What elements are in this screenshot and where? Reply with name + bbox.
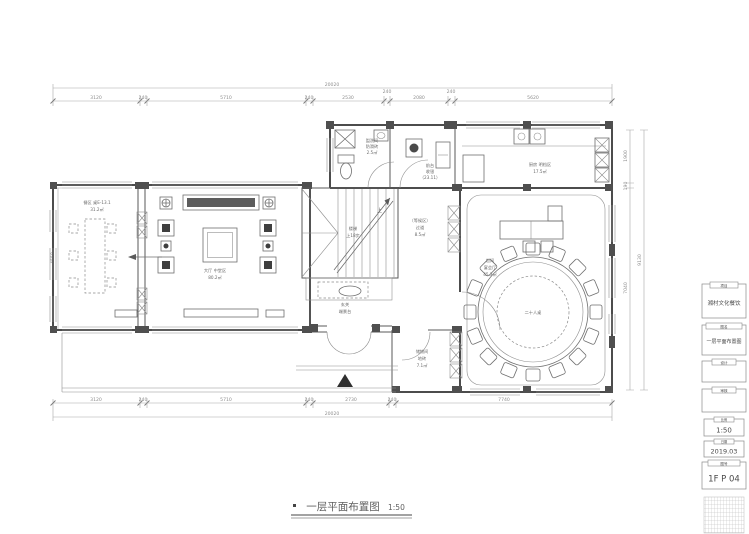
corridor: （等候区） 过道 8.5㎡ xyxy=(410,217,431,237)
storage-label-1: 储物间 xyxy=(416,348,429,355)
tb7-text: 1F P 04 xyxy=(708,475,740,485)
corridor-label-3: 8.5㎡ xyxy=(415,231,427,237)
toilet-room: 盥洗间 防滑砖 2.5㎡ xyxy=(335,130,388,179)
storage-label-2: 地砖 xyxy=(418,355,426,362)
banquet-label-1: 包间 xyxy=(486,257,494,264)
dining-label-1: 餐区 桌E-13.1 xyxy=(83,199,111,206)
kitchen-label-2: 17.5㎡ xyxy=(533,168,547,174)
tb5-text: 1:50 xyxy=(716,427,732,435)
dim-top-1: 240 xyxy=(139,95,148,101)
dim-right-total: 9130 xyxy=(637,254,643,266)
dim-top-0: 3120 xyxy=(90,95,102,101)
dim-bot-total: 20020 xyxy=(325,411,340,417)
dim-right-2: 7040 xyxy=(623,282,629,294)
foyer-label-2: 端景台 xyxy=(339,308,352,315)
tb5-tab: 比例 xyxy=(721,417,727,422)
wc-label-3: 2.5㎡ xyxy=(367,149,379,155)
dim-top-total: 20020 xyxy=(325,82,340,88)
dim-right-0: 1900 xyxy=(623,150,629,162)
tb3-tab: 设计 xyxy=(720,360,728,365)
caption-scale: 1:50 xyxy=(388,503,405,512)
stair-label-1: 楼梯 xyxy=(349,225,357,232)
dim-bot-2: 5710 xyxy=(220,397,232,403)
entry-marker-triangle xyxy=(337,374,353,387)
banquet-room: 二十人桌 包间 宴会厅 45.3㎡ xyxy=(464,206,602,381)
wc-label-2: 防滑砖 xyxy=(366,143,379,150)
tb1-text: 湘村文化餐饮 xyxy=(707,299,741,307)
dim-top-4: 2530 xyxy=(342,95,354,101)
tb2-text: 一层平面布置图 xyxy=(706,338,741,345)
title-block: 项目 湘村文化餐饮 图名 一层平面布置图 设计 审核 比例 1:50 日期 20… xyxy=(702,282,746,533)
reception-office: 前台 收银 （23.11） xyxy=(406,139,450,180)
dim-bot-5: 240 xyxy=(388,397,397,403)
dim-bot-3: 240 xyxy=(305,397,314,403)
dining-label-2: 31.2㎡ xyxy=(90,206,104,212)
kitchen-label-1: 厨房 明档区 xyxy=(529,161,551,168)
banquet-label-2: 宴会厅 xyxy=(484,264,497,271)
central-hall: 大厅 中堂区 80.2㎡ xyxy=(115,195,284,317)
corridor-label-2: 过道 xyxy=(416,224,425,231)
dim-bot-6: 7740 xyxy=(498,397,510,403)
dim-top-3: 240 xyxy=(305,95,314,101)
tb4-tab: 审核 xyxy=(720,388,728,393)
corridor-label-1: （等候区） xyxy=(410,217,431,224)
dim-top-8: 5620 xyxy=(527,95,539,101)
storage-room: 储物间 地砖 7.1㎡ xyxy=(416,348,429,368)
office-label-3: （23.11） xyxy=(420,175,440,180)
hall-label-1: 大厅 中堂区 xyxy=(204,267,226,274)
dining-room: 餐区 桌E-13.1 31.2㎡ xyxy=(69,199,116,293)
dim-top-2: 5710 xyxy=(220,95,232,101)
storage-label-3: 7.1㎡ xyxy=(417,362,429,368)
dim-bot-0: 3120 xyxy=(90,397,102,403)
hall-label-2: 80.2㎡ xyxy=(208,274,222,280)
dim-bot-1: 240 xyxy=(139,397,148,403)
office-label-2: 收银 xyxy=(426,168,435,175)
dim-right-1: 190 xyxy=(623,182,629,191)
tb2-tab: 图名 xyxy=(720,324,728,329)
banquet-table-label: 二十人桌 xyxy=(525,309,543,316)
office-label-1: 前台 xyxy=(426,162,434,169)
dim-top-6: 2080 xyxy=(413,95,425,101)
dim-bot-4: 2730 xyxy=(345,397,357,403)
foyer-label-1: 玄关 xyxy=(341,301,349,308)
titleblock-hatch-grid xyxy=(704,497,744,533)
stair-label-2: 上18步 xyxy=(346,232,360,239)
floor-plan-svg: 20020 3120 240 5710 240 2530 240 2080 24… xyxy=(0,0,749,534)
tb6-text: 2019.03 xyxy=(711,448,738,456)
caption-bullet xyxy=(293,504,296,507)
staircase: 上 楼梯 上18步 玄关 端景台 xyxy=(302,188,398,387)
stair-up-label: 上 xyxy=(377,207,382,214)
caption: 一层平面布置图 1:50 xyxy=(291,501,412,518)
wc-label-1: 盥洗间 xyxy=(366,137,379,144)
tb1-tab: 项目 xyxy=(720,283,727,288)
floor-plan-sheet: 20020 3120 240 5710 240 2530 240 2080 24… xyxy=(0,0,749,534)
tb6-tab: 日期 xyxy=(721,439,727,444)
banquet-label-3: 45.3㎡ xyxy=(483,271,497,277)
dim-top-5: 240 xyxy=(383,89,392,95)
kitchen: 厨房 明档区 17.5㎡ xyxy=(462,129,609,182)
tb7-tab: 图号 xyxy=(720,461,728,466)
caption-title: 一层平面布置图 xyxy=(306,501,380,513)
dim-top-7: 240 xyxy=(447,89,456,95)
